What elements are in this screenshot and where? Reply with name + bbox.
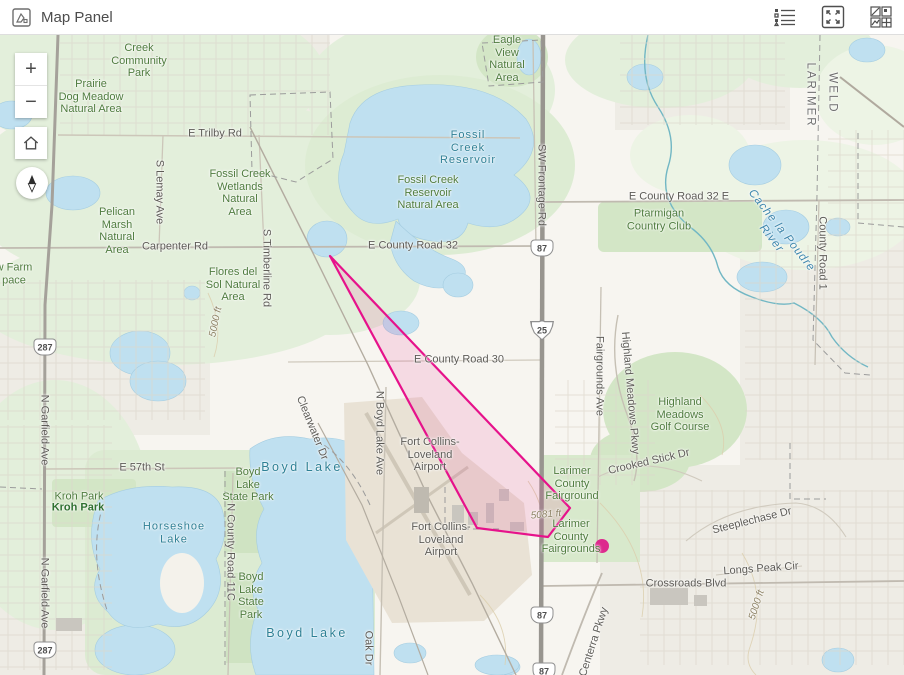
legend-list-icon xyxy=(774,7,796,27)
north-arrow-icon xyxy=(21,172,43,194)
zoom-in-button[interactable]: + xyxy=(15,53,47,85)
expand-button[interactable] xyxy=(820,4,846,30)
basemap-gallery-icon xyxy=(870,6,892,28)
zoom-control: + − xyxy=(15,53,47,118)
page-title: Map Panel xyxy=(41,9,113,26)
compass-button[interactable] xyxy=(16,167,48,199)
zoom-out-button[interactable]: − xyxy=(15,85,47,118)
expand-icon xyxy=(821,5,845,29)
basemap xyxy=(0,35,904,675)
legend-button[interactable] xyxy=(772,4,798,30)
basemap-gallery-button[interactable] xyxy=(868,4,894,30)
panel-header: Map Panel xyxy=(0,0,904,35)
home-icon xyxy=(21,133,41,153)
map-canvas[interactable]: Creek Community ParkPrairie Dog Meadow N… xyxy=(0,35,904,675)
point-graphic[interactable] xyxy=(595,539,609,553)
home-button[interactable] xyxy=(15,127,47,159)
peninsula xyxy=(160,553,204,613)
map-panel-icon xyxy=(12,8,31,27)
